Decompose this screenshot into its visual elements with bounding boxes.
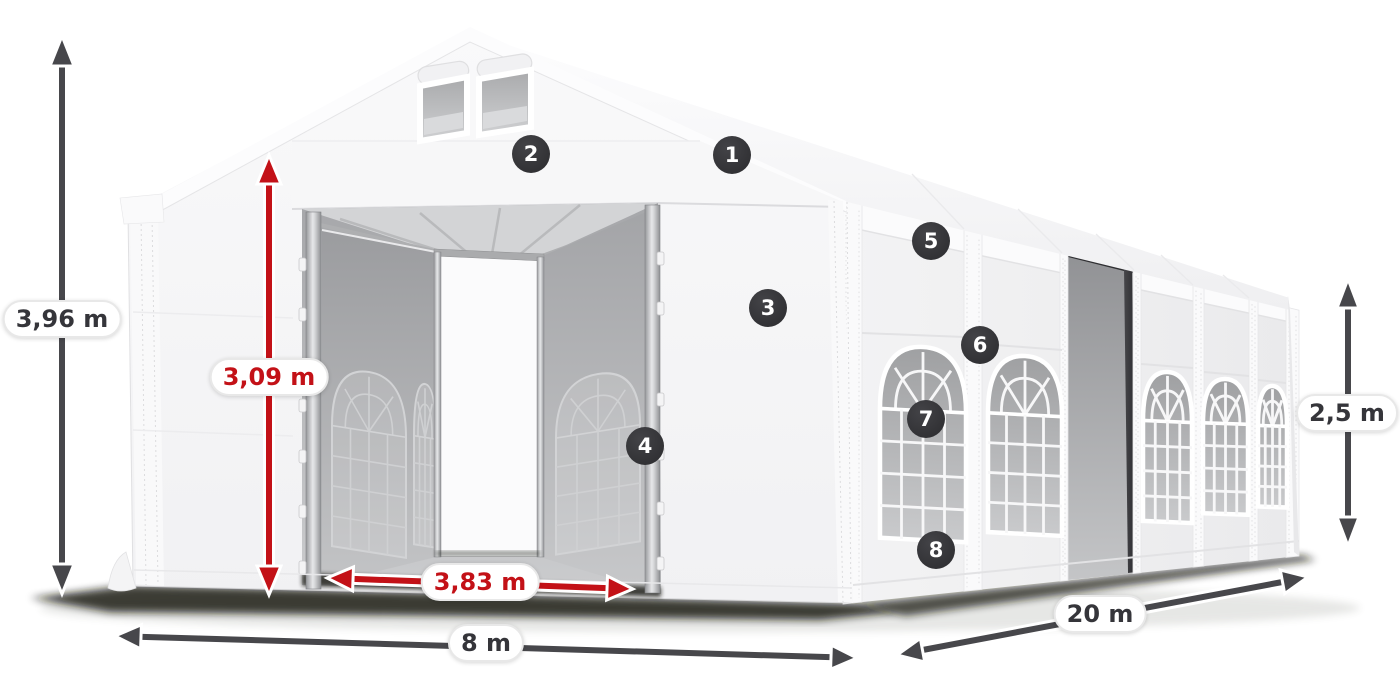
- tent-dimension-illustration: 3,96 m 3,09 m 3,83 m 8 m 20 m 2,5 m 1 2 …: [0, 0, 1400, 700]
- post-clip-icon: [299, 399, 306, 412]
- callout-badge-4[interactable]: 4: [626, 427, 664, 465]
- callout-badge-1[interactable]: 1: [713, 136, 751, 174]
- side-window-3: [1143, 371, 1192, 523]
- post-clip-icon: [657, 502, 664, 515]
- dimension-entrance-width: 3,83 m: [421, 563, 540, 601]
- post-clip-icon: [657, 393, 664, 406]
- corner-cap: [120, 194, 164, 224]
- dimension-length: 20 m: [1054, 595, 1147, 633]
- post-clip-icon: [299, 258, 306, 271]
- interior-window-1: [332, 366, 406, 558]
- side-window-1: [880, 345, 966, 543]
- interior-window-2: [414, 382, 436, 547]
- dimension-total-height: 3,96 m: [3, 300, 122, 338]
- tent-drawing: [0, 0, 1400, 700]
- post-clip-icon: [657, 302, 664, 315]
- callout-badge-7[interactable]: 7: [907, 400, 945, 438]
- back-door-opening: [436, 252, 540, 556]
- callout-badge-8[interactable]: 8: [917, 531, 955, 569]
- side-strap: [1133, 270, 1141, 573]
- corner-skirt: [108, 552, 136, 591]
- side-window-5: [1258, 385, 1287, 507]
- vent-left: [417, 60, 470, 141]
- post-clip-icon: [657, 252, 664, 265]
- side-open-bay: [1064, 248, 1140, 580]
- back-door-post-right: [537, 257, 544, 557]
- post-clip-icon: [299, 308, 306, 321]
- post-clip-icon: [657, 557, 664, 570]
- callout-badge-5[interactable]: 5: [912, 222, 950, 260]
- front-door-post-left: [306, 212, 321, 589]
- back-door-post-left: [434, 252, 441, 557]
- side-wall: [843, 200, 1299, 604]
- callout-badge-2[interactable]: 2: [512, 135, 550, 173]
- tent: [108, 27, 1299, 604]
- post-clip-icon: [299, 450, 306, 463]
- entrance-interior: [299, 203, 664, 597]
- callout-badge-6[interactable]: 6: [961, 326, 999, 364]
- callout-badge-3[interactable]: 3: [749, 289, 787, 327]
- post-clip-icon: [299, 561, 306, 574]
- side-window-2: [988, 354, 1062, 536]
- dimension-side-height: 2,5 m: [1296, 394, 1398, 432]
- interior-window-3: [556, 367, 640, 554]
- dimension-entrance-height: 3,09 m: [210, 358, 329, 396]
- vent-right: [476, 53, 533, 135]
- post-clip-icon: [299, 505, 306, 518]
- side-window-4: [1203, 378, 1248, 515]
- dimension-width: 8 m: [448, 624, 524, 662]
